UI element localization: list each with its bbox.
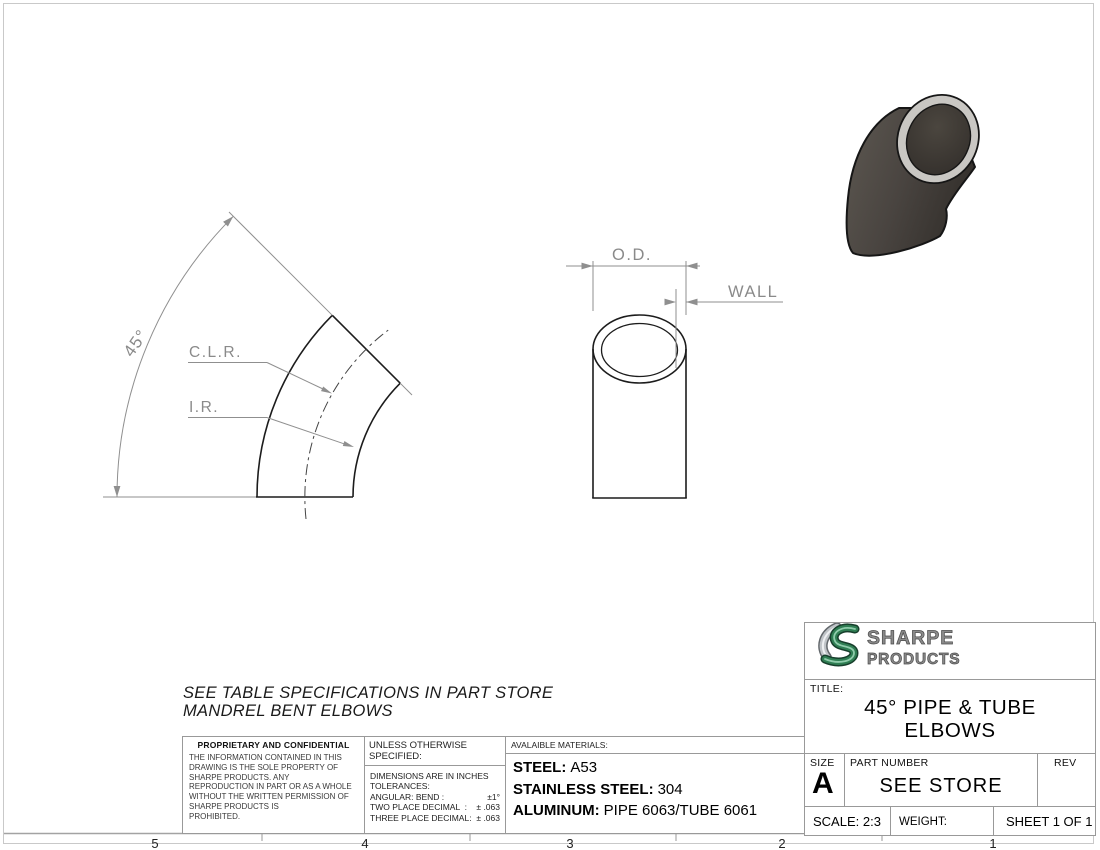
sheet-cell: SHEET 1 OF 1 <box>994 807 1095 836</box>
tolerance-row: THREE PLACE DECIMAL:± .063 <box>370 813 500 823</box>
zone-number: 1 <box>982 836 1004 850</box>
arrowhead <box>321 387 332 394</box>
materials-rows: STEEL:A53 STAINLESS STEEL:304 ALUMINUM:P… <box>506 754 805 825</box>
brand-name-line1: SHARPE <box>867 627 954 649</box>
leader-line <box>267 418 344 444</box>
clr-label: C.L.R. <box>189 344 242 361</box>
wall-label: WALL <box>728 283 778 301</box>
zone-number: 3 <box>559 836 581 850</box>
arrowhead <box>343 441 354 447</box>
sharpe-logo: SHARPE PRODUCTS <box>805 623 985 671</box>
title-cell: TITLE: 45° PIPE & TUBE ELBOWS <box>805 679 1095 753</box>
tolerance-row: TOLERANCES: <box>370 781 500 791</box>
outer-diameter-ellipse <box>593 315 686 383</box>
tolerance-row: TWO PLACE DECIMAL :± .063 <box>370 802 500 812</box>
proprietary-body: THE INFORMATION CONTAINED IN THIS DRAWIN… <box>189 753 358 822</box>
bent-tube-icon <box>823 627 855 662</box>
arrowhead <box>686 299 698 306</box>
tolerance-header: UNLESS OTHERWISE SPECIFIED: <box>365 737 505 766</box>
leader-line <box>267 363 323 390</box>
scale-cell: SCALE: 2:3 <box>805 807 891 836</box>
part-number-value: SEE STORE <box>845 775 1037 798</box>
tube-section-view: O.D. WALL <box>566 246 783 498</box>
size-cell: SIZE A <box>805 754 845 807</box>
materials-block: AVALAIBLE MATERIALS: STEEL:A53 STAINLESS… <box>505 736 806 834</box>
angle-label: 45° <box>120 326 152 360</box>
tolerance-row: ANGULAR: BEND :±1° <box>370 792 500 802</box>
tolerance-row: DIMENSIONS ARE IN INCHES <box>370 771 500 781</box>
proprietary-block: PROPRIETARY AND CONFIDENTIAL THE INFORMA… <box>182 736 365 834</box>
size-row: SIZE A PART NUMBER SEE STORE REV <box>805 753 1095 806</box>
extension-line <box>229 212 332 315</box>
spec-note-line1: SEE TABLE SPECIFICATIONS IN PART STORE <box>183 684 553 702</box>
brand-logo: SHARPE PRODUCTS <box>805 623 1095 679</box>
arrowhead <box>582 263 594 270</box>
arrowhead <box>114 486 121 497</box>
arrowhead <box>686 263 698 270</box>
elbow-profile-view: 45° C.L.R. I.R. <box>103 212 412 519</box>
title-field-label: TITLE: <box>810 683 843 695</box>
rev-field-label: REV <box>1054 757 1077 769</box>
material-row: ALUMINUM:PIPE 6063/TUBE 6061 <box>513 800 798 822</box>
od-label: O.D. <box>612 246 652 264</box>
elbow-3d-render <box>847 81 994 255</box>
proprietary-title: PROPRIETARY AND CONFIDENTIAL <box>189 740 358 750</box>
spec-note-line2: MANDREL BENT ELBOWS <box>183 702 553 720</box>
part-number-field-label: PART NUMBER <box>850 757 929 769</box>
drawing-sheet: 45° C.L.R. I.R. O.D. <box>0 0 1100 850</box>
title-block: SHARPE PRODUCTS TITLE: 45° PIPE & TUBE E… <box>804 622 1096 836</box>
zone-number: 2 <box>771 836 793 850</box>
part-number-cell: PART NUMBER SEE STORE <box>845 754 1038 807</box>
drawing-title: 45° PIPE & TUBE ELBOWS <box>805 696 1095 742</box>
material-row: STAINLESS STEEL:304 <box>513 779 798 801</box>
materials-header: AVALAIBLE MATERIALS: <box>506 737 805 754</box>
zone-number: 4 <box>354 836 376 850</box>
arrowhead <box>665 299 677 306</box>
brand-name-line2: PRODUCTS <box>867 651 960 668</box>
spec-note: SEE TABLE SPECIFICATIONS IN PART STORE M… <box>183 684 553 720</box>
outer-radius-arc <box>257 315 332 497</box>
rev-cell: REV <box>1038 754 1095 807</box>
zone-number: 5 <box>144 836 166 850</box>
scale-row: SCALE: 2:3 WEIGHT: SHEET 1 OF 1 <box>805 806 1095 835</box>
inner-radius-arc <box>353 383 400 497</box>
ir-label: I.R. <box>189 399 219 416</box>
inner-diameter-ellipse <box>602 324 678 377</box>
size-value: A <box>812 767 834 801</box>
material-row: STEEL:A53 <box>513 757 798 779</box>
tolerance-body: DIMENSIONS ARE IN INCHES TOLERANCES: ANG… <box>365 766 505 823</box>
extension-line <box>400 383 412 395</box>
weight-cell: WEIGHT: <box>891 807 994 836</box>
tolerance-block: UNLESS OTHERWISE SPECIFIED: DIMENSIONS A… <box>364 736 506 834</box>
